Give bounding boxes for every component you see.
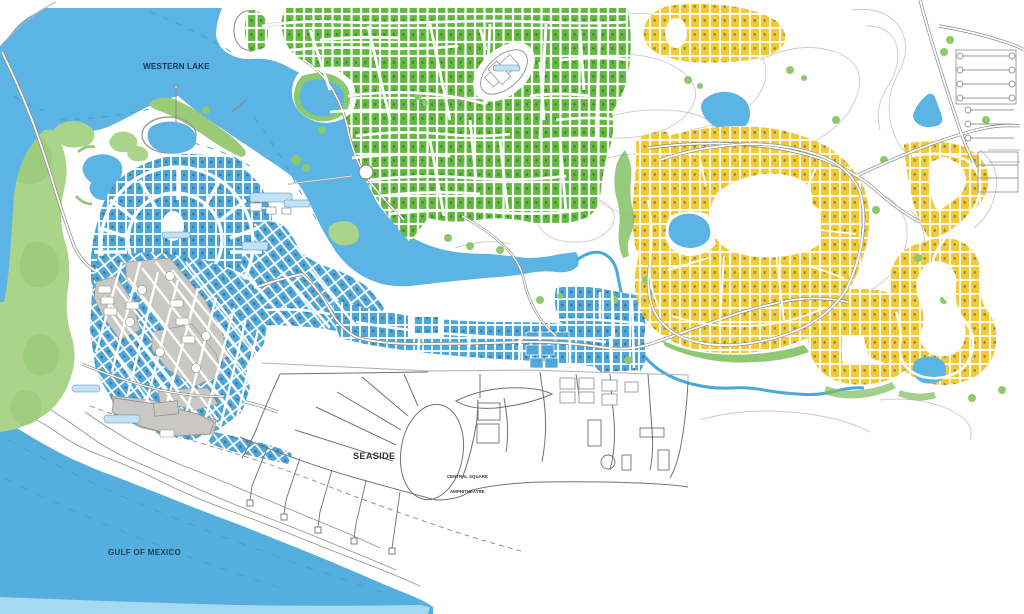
svg-text:SEASIDE: SEASIDE bbox=[353, 451, 395, 461]
svg-text:CENTRAL SQUARE: CENTRAL SQUARE bbox=[447, 474, 488, 479]
svg-text:GULF OF MEXICO: GULF OF MEXICO bbox=[108, 548, 181, 557]
svg-text:WESTERN LAKE: WESTERN LAKE bbox=[143, 62, 210, 71]
svg-text:AMPHITHEATRE: AMPHITHEATRE bbox=[450, 489, 485, 494]
